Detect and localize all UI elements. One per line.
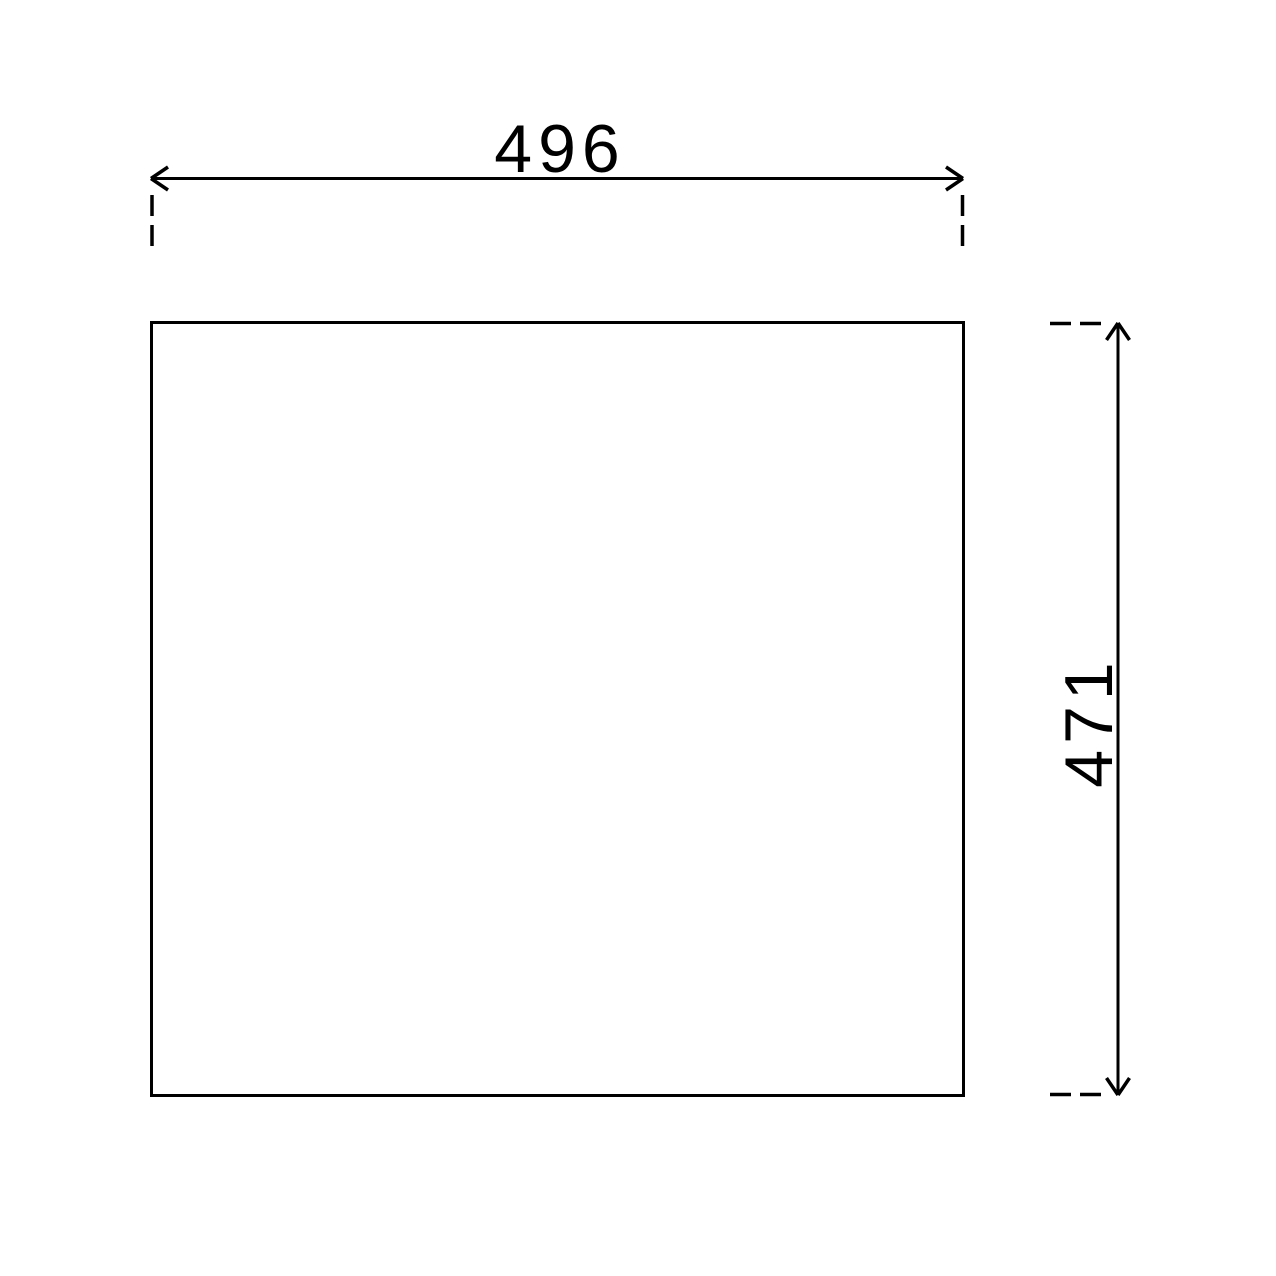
part-outline-rectangle	[152, 323, 964, 1096]
technical-drawing-canvas: 496 471	[0, 0, 1276, 1276]
drawing-page: 496 471	[0, 0, 1276, 1276]
height-dimension-value: 471	[1051, 656, 1127, 787]
width-dimension-value: 496	[494, 111, 625, 187]
height-dimension: 471	[1050, 323, 1130, 1095]
width-dimension: 496	[151, 111, 963, 247]
